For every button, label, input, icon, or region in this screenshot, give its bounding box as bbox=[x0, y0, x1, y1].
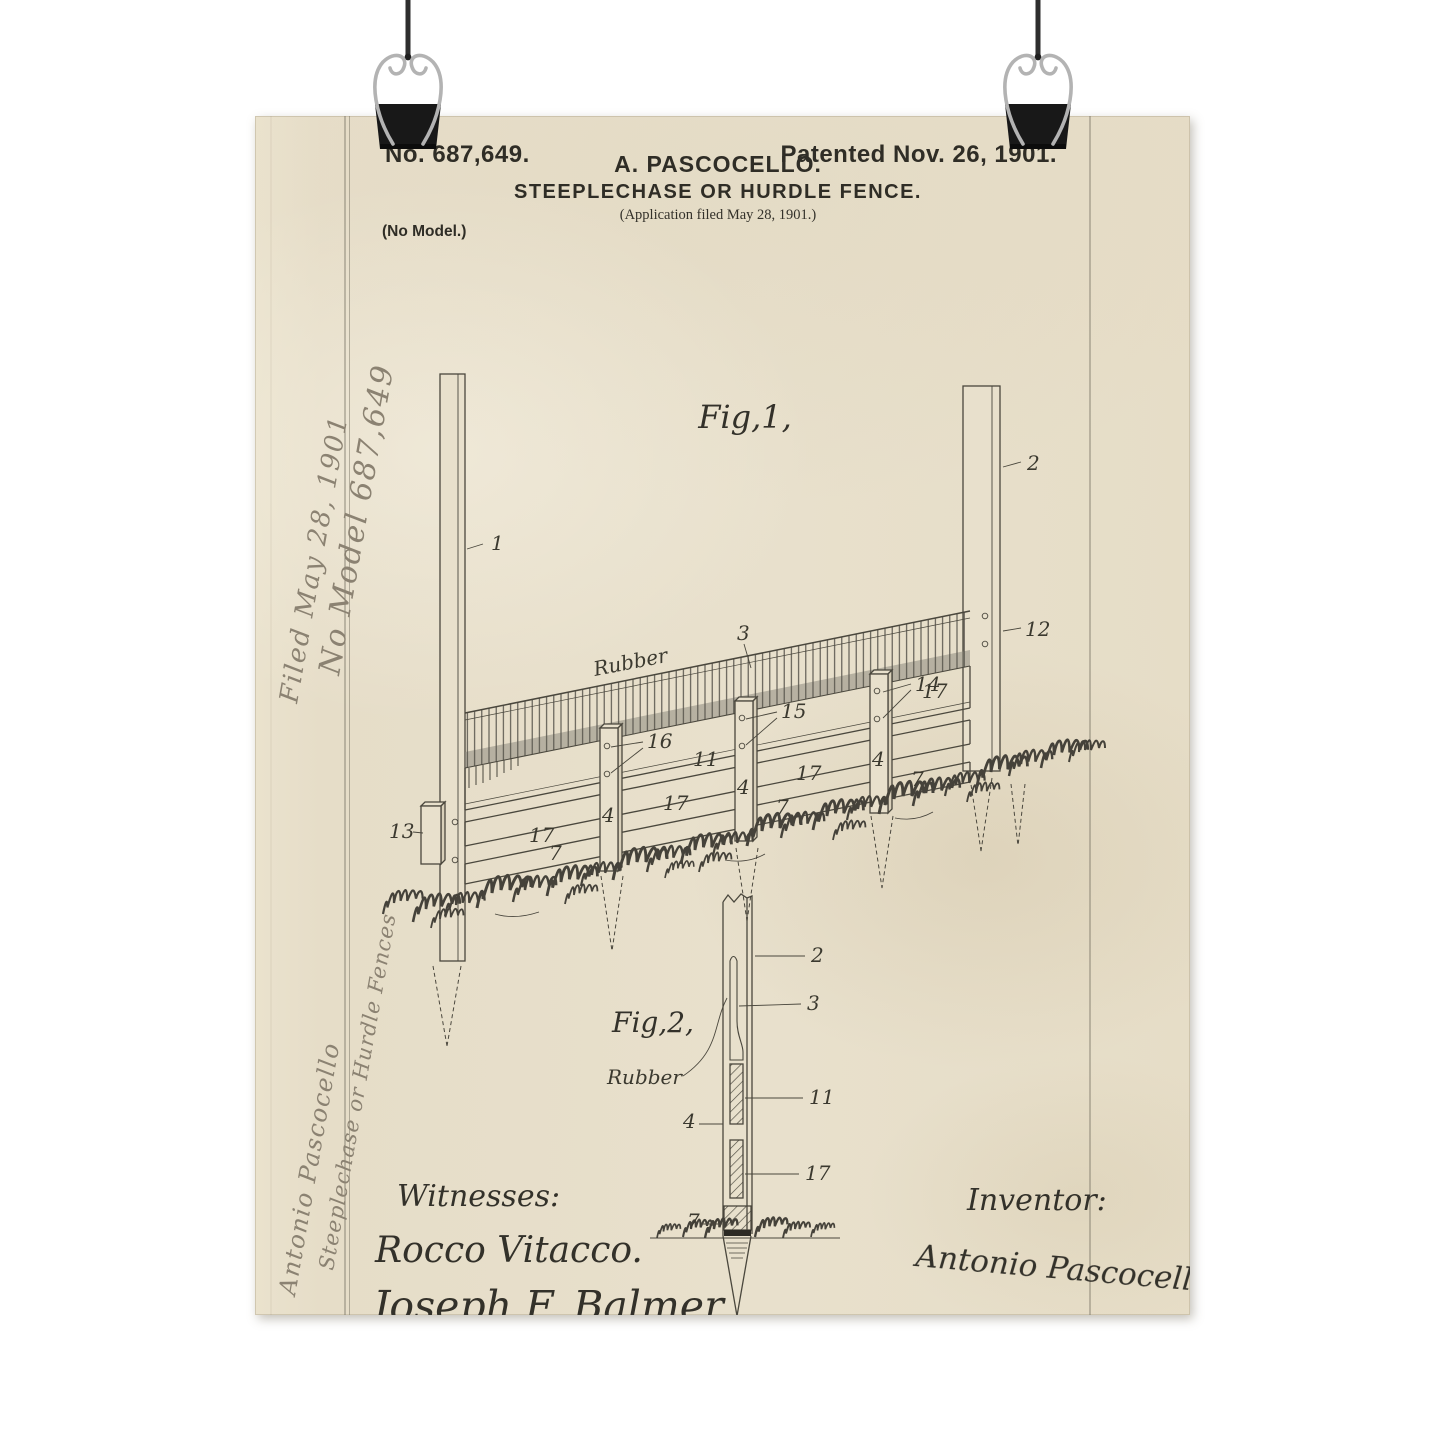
fig2-label-17: 17 bbox=[805, 1161, 831, 1185]
no-model-note: (No Model.) bbox=[382, 223, 466, 240]
inventor-name-heading: A. PASCOCELLO. bbox=[614, 151, 822, 177]
patent-title: STEEPLECHASE OR HURDLE FENCE. bbox=[514, 181, 922, 203]
fig2-caption: Fig,2, bbox=[611, 1006, 694, 1039]
photo-background: No. 687,649. Patented Nov. 26, 1901. A. … bbox=[0, 0, 1445, 1445]
fig2-rubber-strip bbox=[730, 957, 743, 1061]
patent-poster: No. 687,649. Patented Nov. 26, 1901. A. … bbox=[255, 116, 1190, 1315]
inventor-heading: Inventor: bbox=[966, 1183, 1107, 1218]
fig2-label-7: 7 bbox=[687, 1209, 700, 1233]
fig1-label-3: 3 bbox=[737, 621, 750, 645]
clip-jaw bbox=[1010, 144, 1066, 149]
fig1-label-17d: 17 bbox=[922, 679, 948, 703]
inventor-signature: Antonio Pascocello, bbox=[911, 1238, 1190, 1301]
fig1-caption: Fig,1, bbox=[697, 398, 792, 436]
fig1-right-post bbox=[963, 386, 1000, 771]
fig1-label-7a: 7 bbox=[549, 841, 562, 865]
fig2-lower-block bbox=[730, 1140, 743, 1198]
fig2-upper-block bbox=[730, 1064, 743, 1124]
fig1-label-13: 13 bbox=[389, 819, 414, 843]
fig1-underground-dashes bbox=[433, 778, 1025, 1046]
clip-string bbox=[1036, 0, 1041, 56]
application-line: (Application filed May 28, 1901.) bbox=[620, 207, 817, 223]
fig1-label-17b: 17 bbox=[663, 791, 689, 815]
fig1-label-11: 11 bbox=[693, 747, 718, 771]
fig1-left-post bbox=[440, 374, 465, 961]
fig1-label-12: 12 bbox=[1025, 617, 1050, 641]
clip-string bbox=[406, 0, 411, 56]
clip-jaw bbox=[380, 144, 436, 149]
fig1-label-4b: 4 bbox=[736, 775, 750, 799]
fig1-drawing: Fig,1, bbox=[383, 374, 1105, 1124]
binder-clip-left bbox=[363, 0, 453, 160]
fig2-label-3: 3 bbox=[807, 991, 820, 1015]
paper-crease bbox=[270, 116, 272, 1315]
fig1-label-7b: 7 bbox=[776, 795, 789, 819]
fig2-label-2: 2 bbox=[810, 943, 824, 967]
signature-block: Witnesses: Rocco Vitacco. Joseph F. Balm… bbox=[366, 1179, 1190, 1315]
witnesses-heading: Witnesses: bbox=[397, 1179, 560, 1214]
fig1-label-2: 2 bbox=[1026, 451, 1040, 475]
fig1-label-4a: 4 bbox=[601, 803, 615, 827]
fig1-label-7c: 7 bbox=[911, 767, 924, 791]
fig1-label-4c: 4 bbox=[871, 747, 885, 771]
fig2-label-4: 4 bbox=[682, 1109, 696, 1133]
witness-signature-2: Joseph F. Balmer bbox=[366, 1282, 726, 1315]
fig1-label-1: 1 bbox=[491, 531, 504, 555]
fig1-label-15: 15 bbox=[781, 699, 806, 723]
fig1-label-17c: 17 bbox=[796, 761, 822, 785]
witness-signature-1: Rocco Vitacco. bbox=[374, 1230, 643, 1271]
fig2-label-rubber: Rubber bbox=[606, 1065, 683, 1089]
binder-clip-right bbox=[993, 0, 1083, 160]
margin-handwriting: Filed May 28, 1901 No Model 687,649 Anto… bbox=[273, 361, 402, 1299]
fig2-leader-lines bbox=[683, 956, 805, 1224]
fig1-label-16: 16 bbox=[647, 729, 673, 753]
patent-artwork: No. 687,649. Patented Nov. 26, 1901. A. … bbox=[255, 116, 1190, 1315]
fig2-label-11: 11 bbox=[809, 1085, 834, 1109]
